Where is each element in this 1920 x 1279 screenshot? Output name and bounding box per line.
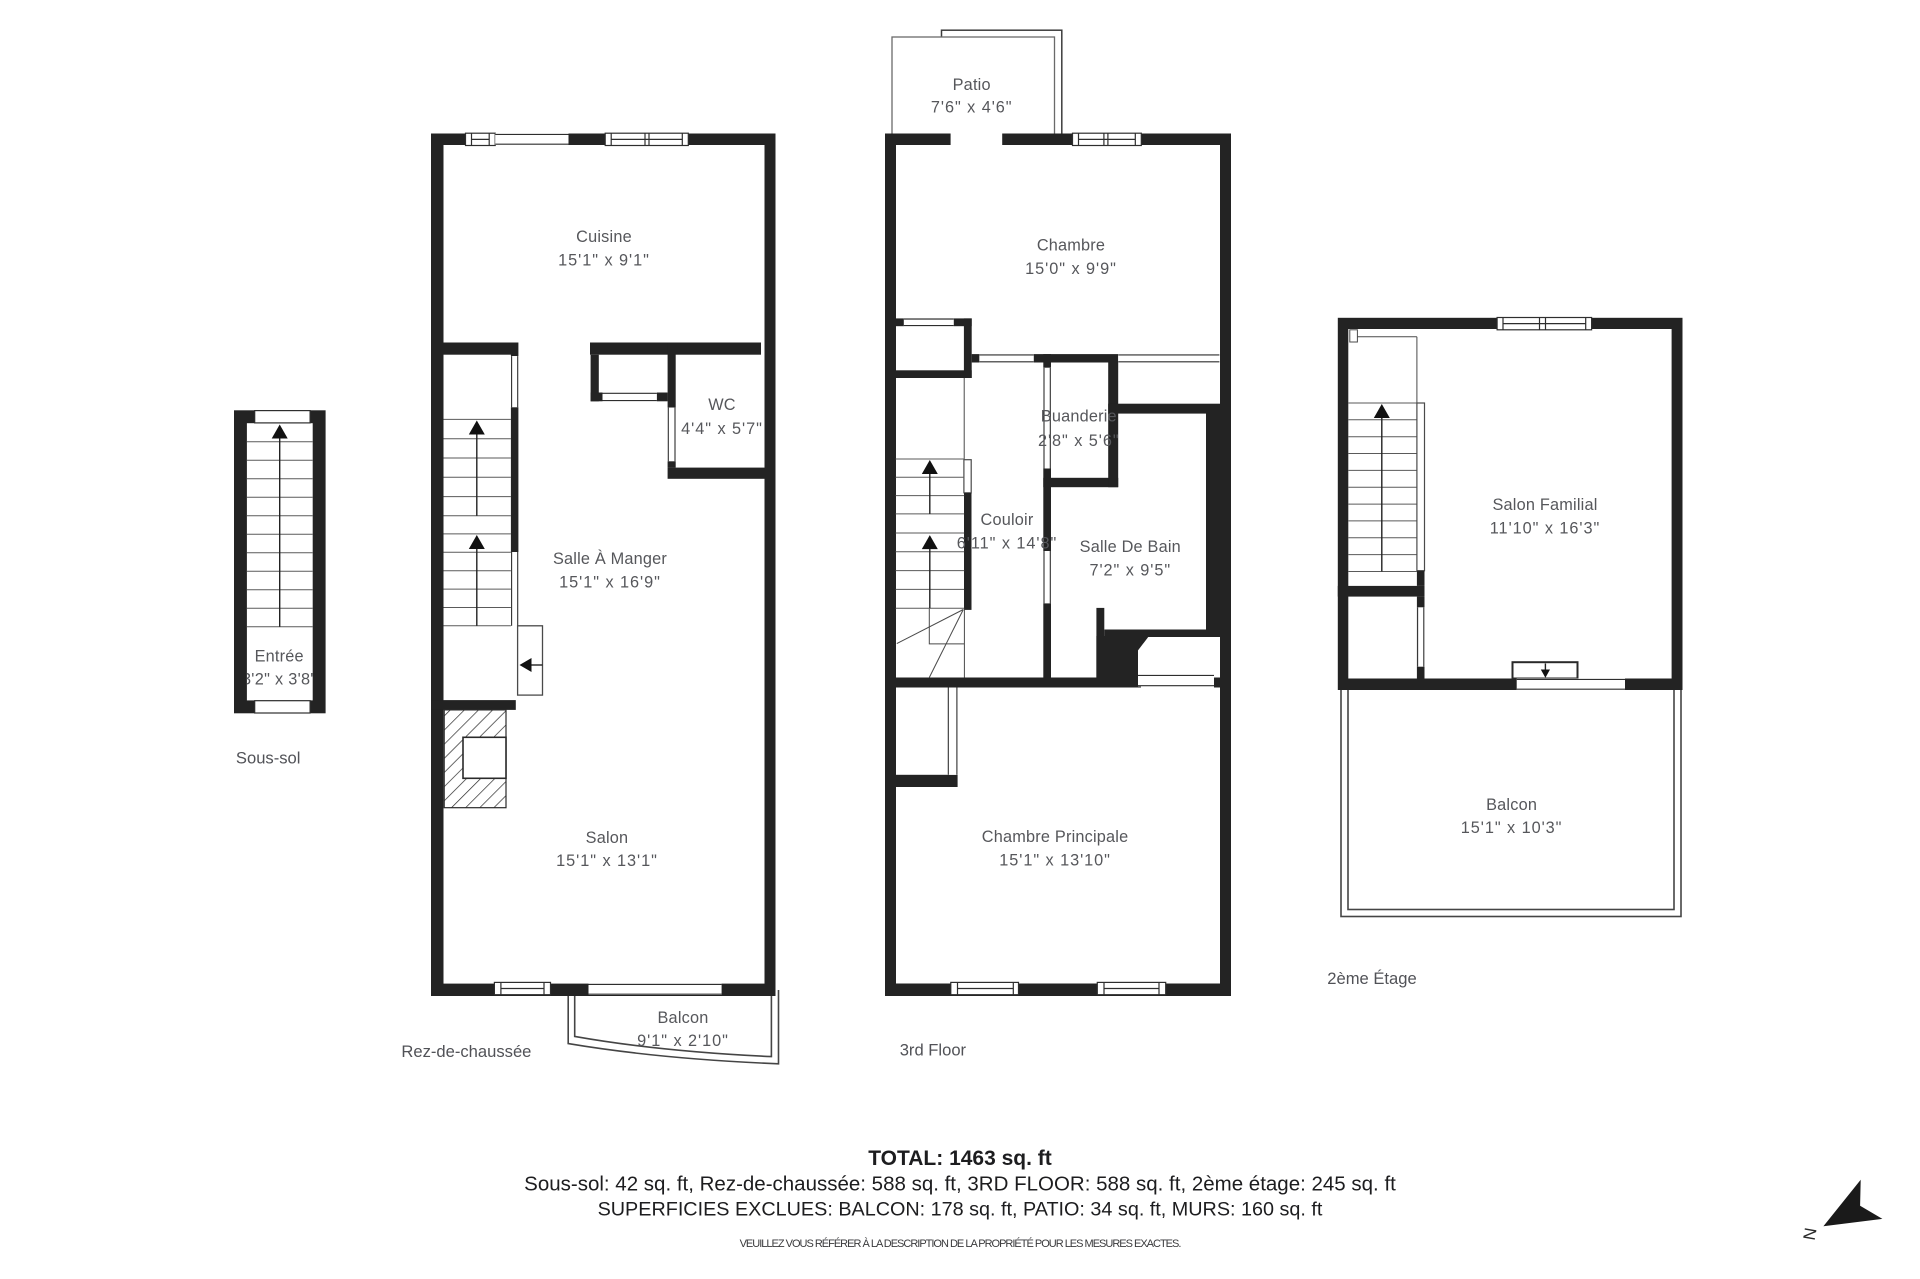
svg-text:Balcon: Balcon [1486,796,1537,814]
svg-text:7'6" x 4'6": 7'6" x 4'6" [931,98,1013,116]
svg-text:6'11" x 14'8": 6'11" x 14'8" [957,535,1057,553]
svg-text:Salle De Bain: Salle De Bain [1080,538,1181,556]
svg-text:Sous-sol: Sous-sol [236,749,301,768]
svg-text:Chambre: Chambre [1037,237,1105,255]
svg-text:Patio: Patio [953,76,991,94]
svg-text:Entrée: Entrée [255,648,304,666]
svg-text:WC: WC [708,396,736,414]
svg-text:Salon: Salon [586,829,629,847]
svg-text:Balcon: Balcon [658,1009,709,1027]
svg-text:15'1" x 16'9": 15'1" x 16'9" [559,574,661,592]
svg-text:4'4" x 5'7": 4'4" x 5'7" [681,420,763,438]
svg-text:Sous-sol: 42 sq. ft, Rez-de-ch: Sous-sol: 42 sq. ft, Rez-de-chaussée: 58… [524,1173,1396,1196]
svg-text:Cuisine: Cuisine [576,228,632,246]
svg-text:Chambre Principale: Chambre Principale [982,828,1129,846]
svg-text:Couloir: Couloir [981,511,1034,529]
svg-text:SUPERFICIES EXCLUES: BALCON: 1: SUPERFICIES EXCLUES: BALCON: 178 sq. ft,… [598,1199,1323,1221]
svg-text:VEUILLEZ VOUS RÉFÉRER À LA DES: VEUILLEZ VOUS RÉFÉRER À LA DESCRIPTION D… [740,1237,1182,1250]
svg-text:15'1" x 13'1": 15'1" x 13'1" [556,852,658,870]
svg-text:15'1" x 10'3": 15'1" x 10'3" [1461,819,1563,837]
svg-text:2'8" x 5'6": 2'8" x 5'6" [1038,432,1120,450]
svg-text:7'2" x 9'5": 7'2" x 9'5" [1089,561,1171,579]
svg-text:9'1" x 2'10": 9'1" x 2'10" [637,1032,729,1050]
svg-text:11'10" x 16'3": 11'10" x 16'3" [1490,520,1600,538]
svg-text:2ème Étage: 2ème Étage [1327,969,1416,988]
svg-text:TOTAL: 1463 sq. ft: TOTAL: 1463 sq. ft [868,1147,1052,1170]
svg-text:3rd Floor: 3rd Floor [900,1041,967,1060]
svg-text:15'0" x 9'9": 15'0" x 9'9" [1025,260,1117,278]
svg-text:15'1" x 9'1": 15'1" x 9'1" [558,252,650,270]
svg-text:Salle À Manger: Salle À Manger [553,549,667,568]
svg-text:Rez-de-chaussée: Rez-de-chaussée [401,1042,531,1061]
svg-text:15'1" x 13'10": 15'1" x 13'10" [999,851,1111,869]
svg-text:Salon Familial: Salon Familial [1492,496,1597,514]
svg-text:Buanderie: Buanderie [1041,408,1117,426]
svg-text:3'2" x 3'8": 3'2" x 3'8" [242,671,316,689]
